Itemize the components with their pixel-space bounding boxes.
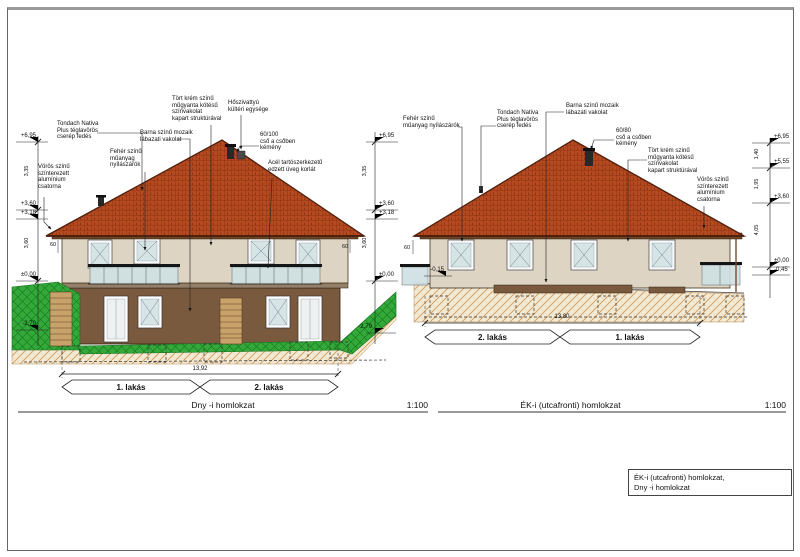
left-annotation-roof-tiles: Tondach Nativa Plus téglavörös cserép fe… <box>57 121 98 141</box>
right-elevation-title: ÉK-i (utcafronti) homlokzat <box>463 400 678 410</box>
sheet-legend-box: ÉK-i (utcafronti) homlokzat, Dny -i homl… <box>628 469 792 496</box>
right-eave-overhang-dim: 60 <box>404 245 410 251</box>
left-annotation-wall-plaster: Tört krém színű műgyanta kötésű színvako… <box>172 96 221 122</box>
left-level-wall-top: +3,18 <box>12 210 36 217</box>
left-level-eave-r: +3,60 <box>379 201 405 208</box>
left-level-lower-left: -2,70 <box>12 321 36 328</box>
right-annotation-roof-tiles: Tondach Nativa Plus téglavörös cserép fe… <box>497 110 538 130</box>
right-annotation-gutter: Vörös színű színterezett alumínium csato… <box>697 177 729 203</box>
right-unit-label-1: 2. lakás <box>435 331 550 344</box>
right-elevation-scale: 1:100 <box>741 400 786 410</box>
left-level-ridge-r: +6,95 <box>379 133 405 140</box>
right-annotation-windows: Fehér színű műanyag nyílászárók <box>403 116 460 129</box>
left-annotation-heat-pump: Hőszivattyú kültéri egysége <box>228 100 268 113</box>
left-level-lower-right: -2,79 <box>348 324 372 331</box>
right-unit-label-2: 1. lakás <box>570 331 690 344</box>
right-level-terrain: -0,15 <box>424 267 444 274</box>
left-overall-width-dim: 13,92 <box>185 366 215 372</box>
left-annotation-base-plaster: Barna színű mozaik lábazati vakolat <box>140 130 193 143</box>
right-dim-2: 1,95 <box>754 169 760 199</box>
right-level-eave: +3,60 <box>774 194 796 201</box>
right-dim-1: 1,40 <box>754 139 760 169</box>
left-dim-upper-2: 3,35 <box>362 156 368 186</box>
left-roof <box>46 140 364 239</box>
left-dim-upper-1: 3,35 <box>24 156 30 186</box>
left-unit-label-2: 2. lakás <box>210 381 328 394</box>
right-level-mid: +5,55 <box>774 159 796 166</box>
right-annotation-chimney: 60/80 cső a csőben kémény <box>616 128 651 148</box>
left-level-ridge: +6,95 <box>12 133 36 140</box>
left-level-ground-r: ±0,00 <box>379 272 405 279</box>
right-level-ridge: +6,95 <box>774 134 796 141</box>
left-elevation-scale: 1:100 <box>383 400 428 410</box>
left-level-eave: +3,60 <box>12 201 36 208</box>
left-annotation-windows: Fehér színű műanyag nyílászárók <box>110 149 142 169</box>
left-level-wall-top-r: +3,18 <box>379 210 405 217</box>
right-annotation-wall-plaster: Tört krém színű műgyanta kötésű színvako… <box>648 148 697 174</box>
right-dim-3: 4,05 <box>754 215 760 245</box>
left-level-ground: ±0,00 <box>12 272 36 279</box>
left-annotation-chimney: 60/100 cső a csőben kémény <box>260 132 295 152</box>
left-annotation-glass-railing: Acél tartószerkezetű edzett üveg korlát <box>268 160 322 173</box>
left-annotation-gutter: Vörös színű színterezett alumínium csato… <box>38 164 70 190</box>
right-level-below: -0,45 <box>774 267 796 274</box>
right-annotation-base-plaster: Barna színű mozaik lábazati vakolat <box>566 103 619 116</box>
right-level-ground: ±0,00 <box>774 258 796 265</box>
right-overall-width-dim: 13,80 <box>547 314 577 320</box>
left-dim-lower-1: 3,60 <box>24 228 30 258</box>
drawing-sheet: Tondach Nativa Plus téglavörös cserép fe… <box>0 0 800 557</box>
left-unit-label-1: 1. lakás <box>72 381 190 394</box>
left-elevation-title: Dny -i homlokzat <box>123 400 323 410</box>
left-dim-lower-2: 3,60 <box>362 228 368 258</box>
left-eave-overhang-dim-2: 60 <box>342 244 348 250</box>
left-eave-overhang-dim-1: 60 <box>50 242 56 248</box>
